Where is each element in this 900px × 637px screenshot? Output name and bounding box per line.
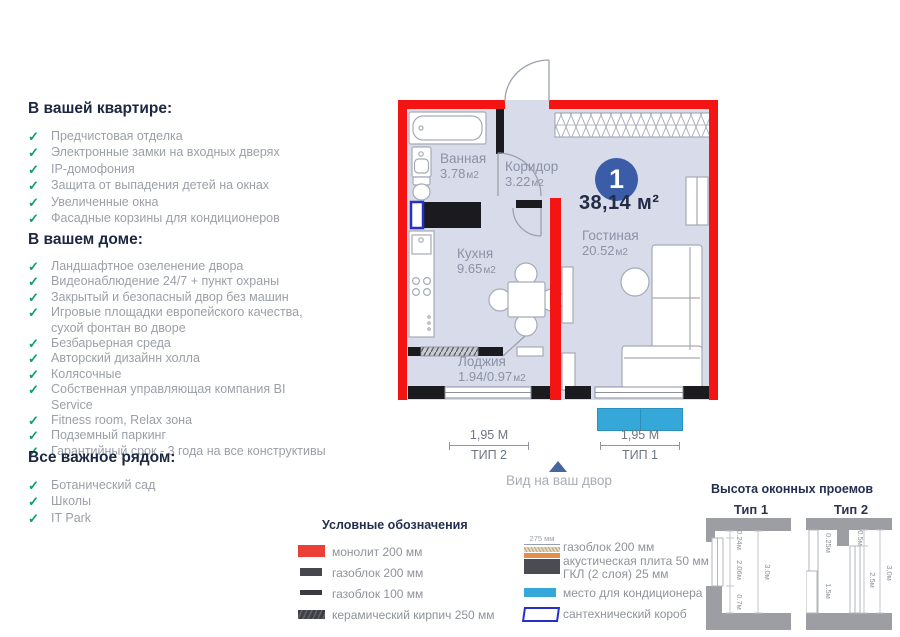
list-item-label: Школы bbox=[51, 494, 91, 509]
list-item-label: Fitness room, Relax зона bbox=[51, 413, 192, 428]
apartment-infographic: В вашей квартире: ✓Предчистовая отделка … bbox=[0, 0, 900, 637]
check-icon: ✓ bbox=[28, 178, 42, 193]
check-icon: ✓ bbox=[28, 351, 42, 366]
list-item: ✓Авторский дизайнн холла bbox=[28, 351, 330, 366]
room-label-living: Гостиная 20.52м2 bbox=[582, 228, 639, 260]
list-item: ✓Колясочные bbox=[28, 367, 330, 382]
legend-plumbing-label: сантехнический короб bbox=[563, 607, 687, 621]
section-house-title: В вашем доме: bbox=[28, 231, 330, 249]
list-item: ✓Подземный паркинг bbox=[28, 428, 330, 443]
list-item-label: Безбарьерная среда bbox=[51, 336, 171, 351]
list-item: ✓Ландшафтное озеленение двора bbox=[28, 259, 330, 274]
window-glass bbox=[712, 538, 723, 586]
check-icon: ✓ bbox=[28, 274, 42, 289]
gasblock200-wall-icon bbox=[300, 568, 322, 576]
dimension-left: 1,95 М ТИП 2 bbox=[446, 429, 532, 462]
list-item: ✓Игровые площадки европейского качества,… bbox=[28, 305, 330, 336]
ceramic-brick-wall-icon bbox=[298, 610, 325, 619]
check-icon: ✓ bbox=[28, 195, 42, 210]
check-icon: ✓ bbox=[28, 428, 42, 443]
legend-gasblock200-label: газоблок 200 мм bbox=[332, 566, 423, 580]
room-label-corridor: Коридор 3.22м2 bbox=[505, 159, 558, 191]
svg-text:0.24м: 0.24м bbox=[735, 530, 744, 550]
legend-gasblock100-label: газоблок 100 мм bbox=[332, 587, 423, 601]
list-item: ✓Фасадные корзины для кондиционеров bbox=[28, 211, 330, 226]
list-item: ✓Ботанический сад bbox=[28, 478, 330, 493]
ac-spot-icon bbox=[524, 588, 556, 597]
room-label-bathroom: Ванная 3.78м2 bbox=[440, 151, 486, 183]
svg-text:1.5м: 1.5м bbox=[824, 583, 833, 599]
svg-text:0.7м: 0.7м bbox=[735, 594, 744, 610]
list-item-label: Увеличенные окна bbox=[51, 195, 159, 210]
legend-ac-label: место для кондиционера bbox=[563, 586, 702, 600]
list-item-label: Защита от выпадения детей на окнах bbox=[51, 178, 269, 193]
list-item: ✓IP-домофония bbox=[28, 162, 330, 177]
list-item-label: Предчистовая отделка bbox=[51, 129, 183, 144]
view-label: Вид на ваш двор bbox=[478, 473, 640, 488]
check-icon: ✓ bbox=[28, 145, 42, 160]
check-icon: ✓ bbox=[28, 162, 42, 177]
list-item-label: Ботанический сад bbox=[51, 478, 155, 493]
window-type2-diagram: 0.25м 0.5м 2.5м 1.5м 3.0м bbox=[806, 518, 898, 630]
window-loggia bbox=[445, 387, 531, 398]
check-icon: ✓ bbox=[28, 305, 42, 336]
svg-text:0.25м: 0.25м bbox=[824, 533, 833, 553]
dimension-length: 1,95 М bbox=[446, 429, 532, 442]
list-item: ✓Электронные замки на входных дверях bbox=[28, 145, 330, 160]
list-item-label: IP-домофония bbox=[51, 162, 135, 177]
toilet-icon bbox=[413, 177, 430, 200]
section-nearby-title: Все важное рядом: bbox=[28, 449, 330, 467]
list-item: ✓Предчистовая отделка bbox=[28, 129, 330, 144]
window-type2-label: Тип 2 bbox=[806, 502, 896, 517]
list-item: ✓Увеличенные окна bbox=[28, 195, 330, 210]
svg-text:3.0м: 3.0м bbox=[885, 565, 894, 581]
section-apartment-title: В вашей квартире: bbox=[28, 100, 330, 118]
list-item-label: Фасадные корзины для кондиционеров bbox=[51, 211, 280, 226]
window-heights-title: Высота оконных проемов bbox=[711, 482, 873, 496]
check-icon: ✓ bbox=[28, 511, 42, 526]
list-item-label: Ландшафтное озеленение двора bbox=[51, 259, 243, 274]
gasblock100-wall-icon bbox=[300, 590, 322, 595]
list-item: ✓Fitness room, Relax зона bbox=[28, 413, 330, 428]
list-item: ✓IT Park bbox=[28, 511, 330, 526]
svg-text:2.5м: 2.5м bbox=[868, 572, 877, 588]
room-label-loggia: Лоджия 1.94/0.97м2 bbox=[458, 354, 526, 386]
svg-text:0.5м: 0.5м bbox=[856, 530, 865, 546]
room-label-kitchen: Кухня 9.65м2 bbox=[457, 246, 496, 278]
view-arrow-icon bbox=[549, 461, 567, 472]
legend-brick-label: керамический кирпич 250 мм bbox=[332, 608, 495, 622]
plumbing-box bbox=[411, 202, 423, 228]
section-house: В вашем доме: ✓Ландшафтное озеленение дв… bbox=[28, 231, 330, 459]
floor-plan bbox=[396, 55, 720, 401]
section-nearby-items: ✓Ботанический сад ✓Школы ✓IT Park bbox=[28, 478, 330, 526]
ac-divider bbox=[640, 409, 641, 430]
list-item: ✓Закрытый и безопасный двор без машин bbox=[28, 290, 330, 305]
check-icon: ✓ bbox=[28, 129, 42, 144]
window-type1-label: Тип 1 bbox=[706, 502, 796, 517]
window-type1-diagram: 0.24м 2.06м 0.7м 3.0м bbox=[706, 518, 796, 630]
list-item-label: Собственная управляющая компания BI Serv… bbox=[51, 382, 330, 413]
legend-monolith-label: монолит 200 мм bbox=[332, 545, 422, 559]
list-item-label: IT Park bbox=[51, 511, 91, 526]
legend-title: Условные обозначения bbox=[322, 518, 468, 532]
list-item: ✓Школы bbox=[28, 494, 330, 509]
entrance-door bbox=[505, 60, 549, 101]
check-icon: ✓ bbox=[28, 478, 42, 493]
list-item-label: Авторский дизайнн холла bbox=[51, 351, 200, 366]
kitchen-unit-icon bbox=[409, 231, 434, 337]
layered-wall-acoustic-layer bbox=[524, 553, 560, 558]
legend-layered-label: газоблок 200 мм акустическая плита 50 мм… bbox=[563, 541, 709, 582]
check-icon: ✓ bbox=[28, 211, 42, 226]
unit-number: 1 bbox=[609, 164, 624, 195]
layered-wall-gkl-layer bbox=[524, 559, 560, 574]
list-item-label: Подземный паркинг bbox=[51, 428, 166, 443]
section-nearby: Все важное рядом: ✓Ботанический сад ✓Шко… bbox=[28, 449, 330, 527]
dimension-right: 1,95 М ТИП 1 bbox=[597, 429, 683, 462]
dimension-type: ТИП 1 bbox=[597, 449, 683, 462]
list-item: ✓Видеонаблюдение 24/7 + пункт охраны bbox=[28, 274, 330, 289]
bathtub-icon bbox=[409, 112, 486, 144]
section-apartment: В вашей квартире: ✓Предчистовая отделка … bbox=[28, 100, 330, 227]
check-icon: ✓ bbox=[28, 494, 42, 509]
check-icon: ✓ bbox=[28, 336, 42, 351]
svg-text:2.06м: 2.06м bbox=[735, 560, 744, 580]
check-icon: ✓ bbox=[28, 413, 42, 428]
dimension-type: ТИП 2 bbox=[446, 449, 532, 462]
check-icon: ✓ bbox=[28, 382, 42, 413]
check-icon: ✓ bbox=[28, 290, 42, 305]
list-item: ✓Безбарьерная среда bbox=[28, 336, 330, 351]
wardrobe-icon bbox=[686, 177, 708, 225]
list-item: ✓Защита от выпадения детей на окнах bbox=[28, 178, 330, 193]
layered-wall-gasblock-layer bbox=[524, 547, 560, 552]
monolith-wall-icon bbox=[298, 545, 325, 557]
dimension-length: 1,95 М bbox=[597, 429, 683, 442]
svg-text:3.0м: 3.0м bbox=[763, 564, 772, 580]
section-apartment-items: ✓Предчистовая отделка ✓Электронные замки… bbox=[28, 129, 330, 226]
sink-icon bbox=[412, 147, 431, 177]
check-icon: ✓ bbox=[28, 259, 42, 274]
list-item-label: Колясочные bbox=[51, 367, 121, 382]
list-item-label: Видеонаблюдение 24/7 + пункт охраны bbox=[51, 274, 279, 289]
layered-wall-dimension: 275 мм bbox=[524, 534, 560, 545]
dimension-line bbox=[450, 445, 528, 446]
wardrobe-hatch-strip bbox=[555, 113, 710, 137]
list-item-label: Электронные замки на входных дверях bbox=[51, 145, 280, 160]
plumbing-box-icon bbox=[522, 607, 560, 622]
list-item-label: Закрытый и безопасный двор без машин bbox=[51, 290, 289, 305]
list-item: ✓Собственная управляющая компания BI Ser… bbox=[28, 382, 330, 413]
total-area: 38,14 м² bbox=[579, 192, 659, 215]
list-item-label: Игровые площадки европейского качества, … bbox=[51, 305, 330, 336]
dimension-line bbox=[601, 445, 679, 446]
section-house-items: ✓Ландшафтное озеленение двора ✓Видеонабл… bbox=[28, 259, 330, 459]
window-living bbox=[595, 387, 683, 398]
check-icon: ✓ bbox=[28, 367, 42, 382]
coffee-table-icon bbox=[621, 268, 649, 296]
